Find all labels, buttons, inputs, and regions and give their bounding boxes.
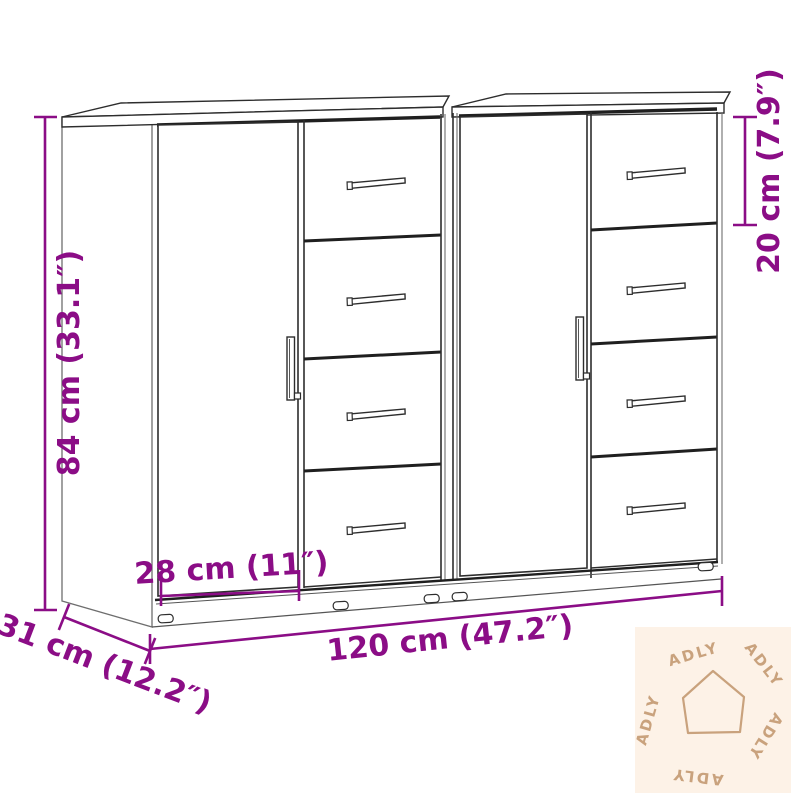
drawer-height-dimension-label: 20 cm (7.9″) bbox=[752, 68, 787, 274]
drawer-handle-1 bbox=[627, 168, 685, 180]
door-width-dimension: 28 cm (11″) bbox=[133, 545, 329, 606]
drawer-handle-2 bbox=[347, 294, 405, 306]
dimension-diagram: 84 cm (33.1″) 20 cm (7.9″) 28 cm (11″) 1… bbox=[0, 0, 800, 800]
foot-5 bbox=[698, 562, 713, 571]
drawer-handle-2 bbox=[627, 283, 685, 295]
drawer-handle-1 bbox=[347, 178, 405, 190]
drawer-handle-4 bbox=[347, 523, 405, 535]
left-cabinet bbox=[62, 96, 449, 627]
drawer-height-dimension: 20 cm (7.9″) bbox=[733, 68, 787, 274]
brand-watermark: ADLY ADLY ADLY ADLY ADLY bbox=[632, 627, 791, 793]
depth-dimension: 31 cm (12.2″) bbox=[0, 604, 216, 721]
door-panel bbox=[460, 114, 587, 576]
dimension-diagram-page: 84 cm (33.1″) 20 cm (7.9″) 28 cm (11″) 1… bbox=[0, 0, 800, 800]
drawer-divider-1 bbox=[304, 235, 441, 241]
door-panel bbox=[158, 122, 298, 596]
drawer-handle-3 bbox=[627, 396, 685, 408]
foot-4 bbox=[452, 592, 467, 601]
drawer-divider-3 bbox=[591, 449, 717, 457]
height-dimension-label: 84 cm (33.1″) bbox=[52, 250, 87, 477]
drawer-divider-1 bbox=[591, 223, 717, 230]
foot-3 bbox=[424, 594, 439, 603]
drawer-divider-3 bbox=[304, 464, 441, 471]
drawer-handle-4 bbox=[627, 503, 685, 515]
drawer-divider-2 bbox=[591, 337, 717, 344]
right-cabinet bbox=[452, 92, 730, 580]
dimension-tick-left bbox=[59, 604, 69, 630]
drawer-handle-3 bbox=[347, 409, 405, 421]
foot-2 bbox=[333, 601, 348, 610]
drawer-divider-2 bbox=[304, 352, 441, 359]
foot-1 bbox=[158, 614, 173, 623]
